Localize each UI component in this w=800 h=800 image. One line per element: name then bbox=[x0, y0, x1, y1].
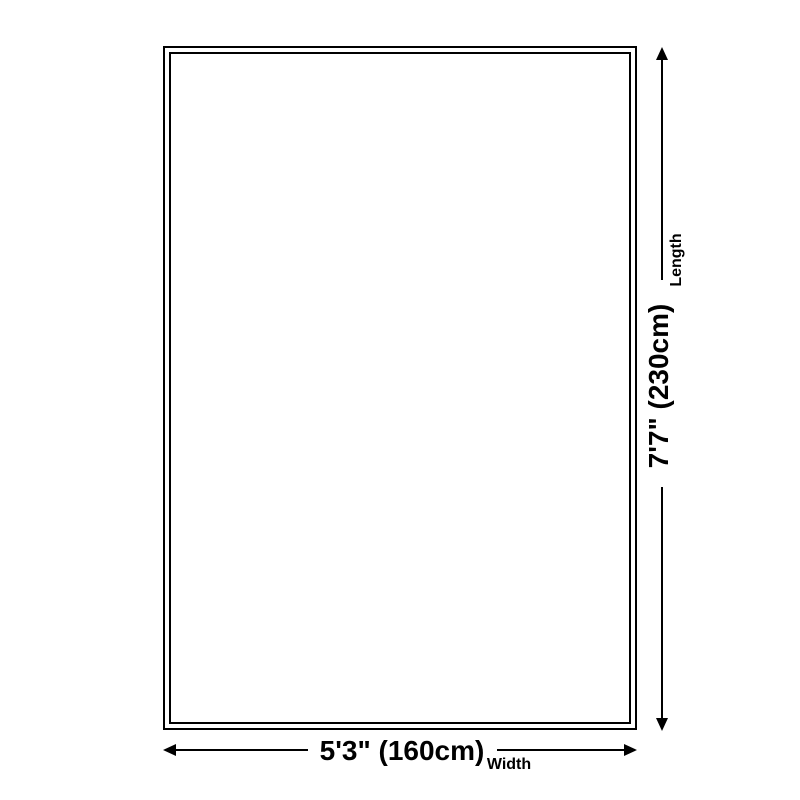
rug-inner-outline bbox=[169, 52, 631, 724]
size-diagram: Length 7'7" (230cm) 5'3" (160cm) Width bbox=[0, 0, 800, 800]
rug-outline bbox=[163, 46, 637, 730]
arrow-down-icon bbox=[656, 718, 668, 731]
width-value: 5'3" (160cm) bbox=[320, 735, 485, 767]
length-label: Length bbox=[668, 233, 686, 286]
arrow-right-icon bbox=[624, 744, 637, 756]
length-line-top-segment bbox=[661, 58, 663, 280]
width-label: Width bbox=[487, 756, 531, 774]
length-value: 7'7" (230cm) bbox=[643, 304, 675, 469]
length-line-bottom-segment bbox=[661, 487, 663, 720]
width-line-right-segment bbox=[497, 749, 625, 751]
width-line-left-segment bbox=[174, 749, 308, 751]
